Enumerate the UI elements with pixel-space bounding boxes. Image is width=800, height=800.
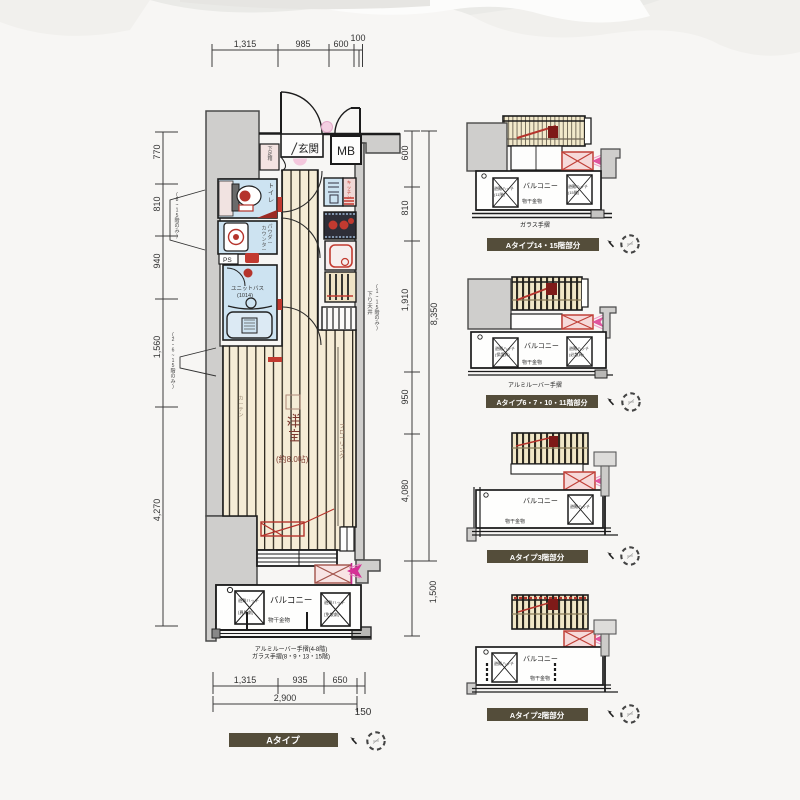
svg-text:物干金物: 物干金物: [530, 675, 550, 682]
svg-text:8,350: 8,350: [429, 303, 439, 326]
svg-text:Aタイプ6・7・10・11階部分: Aタイプ6・7・10・11階部分: [496, 398, 587, 407]
svg-text:避難ハッチ: 避難ハッチ: [324, 599, 345, 606]
svg-text:避難ハッチ: 避難ハッチ: [495, 345, 515, 351]
svg-text:Aタイプ14・15階部分: Aタイプ14・15階部分: [506, 240, 581, 250]
svg-text:物干金物: 物干金物: [522, 198, 542, 205]
svg-text:(必散具): (必散具): [569, 351, 584, 357]
svg-text:パウダー: パウダー: [267, 224, 272, 247]
svg-text:MB: MB: [337, 144, 355, 158]
svg-text:下足箱: 下足箱: [267, 146, 272, 162]
svg-text:1,910: 1,910: [400, 289, 410, 312]
svg-text:(免散劇): (免散劇): [324, 611, 340, 618]
svg-text:フローリング: フローリング: [339, 423, 345, 460]
svg-text:ガラス手摺(8・9・13・15階): ガラス手摺(8・9・13・15階): [252, 653, 330, 661]
svg-text:アルミルーバー手摺: アルミルーバー手摺: [508, 381, 562, 389]
svg-text:避難ハッチ: 避難ハッチ: [494, 660, 514, 666]
svg-text:物干金物: 物干金物: [505, 518, 525, 525]
svg-text:770: 770: [152, 144, 162, 159]
svg-text:バルコニー: バルコニー: [523, 182, 558, 190]
svg-text:940: 940: [152, 253, 162, 268]
svg-text:(約8.0帖): (約8.0帖): [276, 454, 309, 464]
svg-text:950: 950: [400, 389, 410, 404]
svg-text:物干金物: 物干金物: [268, 616, 291, 624]
svg-text:Aタイプ: Aタイプ: [266, 735, 300, 746]
svg-text:810: 810: [400, 200, 410, 215]
svg-text:1,315: 1,315: [234, 675, 257, 685]
svg-text:ユニットバス: ユニットバス: [231, 285, 264, 292]
svg-text:玄関: 玄関: [298, 142, 319, 155]
svg-text:避難ハッチ: 避難ハッチ: [494, 185, 514, 191]
svg-text:810: 810: [152, 196, 162, 211]
svg-text:下り天井: 下り天井: [367, 291, 373, 316]
svg-text:Aタイプ3階部分: Aタイプ3階部分: [510, 552, 565, 562]
svg-text:PS: PS: [223, 257, 232, 264]
svg-text:600: 600: [333, 39, 348, 49]
svg-text:935: 935: [292, 675, 307, 685]
svg-text:ガラス手摺: ガラス手摺: [520, 221, 550, 229]
svg-text:(15階): (15階): [568, 189, 580, 195]
svg-text:物干金物: 物干金物: [522, 359, 542, 366]
svg-text:避難ハッチ: 避難ハッチ: [238, 597, 259, 604]
svg-text:(11階): (11階): [494, 191, 505, 197]
svg-text:バルコニー: バルコニー: [270, 595, 312, 605]
svg-text:トイレ: トイレ: [268, 184, 274, 204]
svg-text:100: 100: [350, 33, 365, 43]
svg-text:1,315: 1,315: [234, 39, 257, 49]
svg-text:1,500: 1,500: [428, 581, 438, 604]
svg-text:(異熱劇): (異熱劇): [238, 609, 254, 616]
svg-text:避難ハッチ: 避難ハッチ: [569, 345, 589, 351]
svg-text:カーテン: カーテン: [238, 396, 243, 419]
svg-text:バルコニー: バルコニー: [523, 497, 558, 505]
svg-text:Aタイプ2階部分: Aタイプ2階部分: [510, 710, 565, 720]
svg-text:バルコニー: バルコニー: [524, 342, 559, 350]
svg-text:4,080: 4,080: [400, 480, 410, 503]
svg-text:650: 650: [332, 675, 347, 685]
svg-text:バルコニー: バルコニー: [523, 655, 558, 663]
svg-text:600: 600: [400, 145, 410, 160]
svg-text:985: 985: [295, 39, 310, 49]
svg-text:4,270: 4,270: [152, 499, 162, 522]
svg-text:カウンター: カウンター: [261, 226, 266, 254]
svg-text:(保護具): (保護具): [495, 351, 510, 357]
svg-text:避難ハッチ: 避難ハッチ: [568, 183, 588, 189]
svg-text:アルミルーバー手摺(4-8階): アルミルーバー手摺(4-8階): [255, 645, 328, 653]
svg-text:150: 150: [355, 707, 372, 718]
svg-text:キッチン: キッチン: [347, 180, 352, 200]
svg-text:2,900: 2,900: [274, 693, 297, 703]
svg-text:避難ハッチ: 避難ハッチ: [570, 503, 590, 509]
svg-text:1,560: 1,560: [152, 336, 162, 359]
